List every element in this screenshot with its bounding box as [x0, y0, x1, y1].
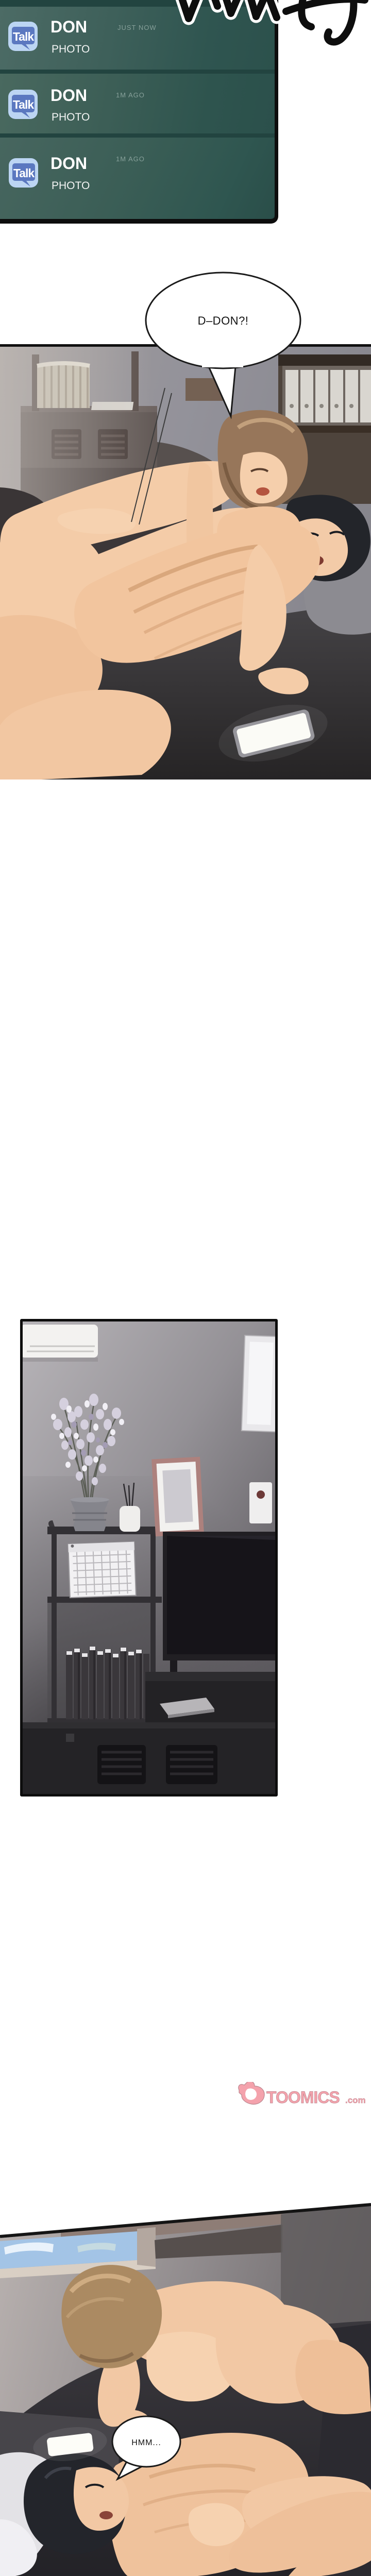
svg-text:.com: .com: [345, 2095, 366, 2105]
svg-text:D–DON?!: D–DON?!: [198, 314, 249, 327]
svg-text:TOOMICS: TOOMICS: [266, 2088, 340, 2107]
svg-text:Talk: Talk: [13, 98, 35, 111]
svg-text:HMM...: HMM...: [131, 2438, 161, 2447]
svg-text:Talk: Talk: [13, 166, 35, 180]
svg-text:Talk: Talk: [13, 30, 35, 43]
